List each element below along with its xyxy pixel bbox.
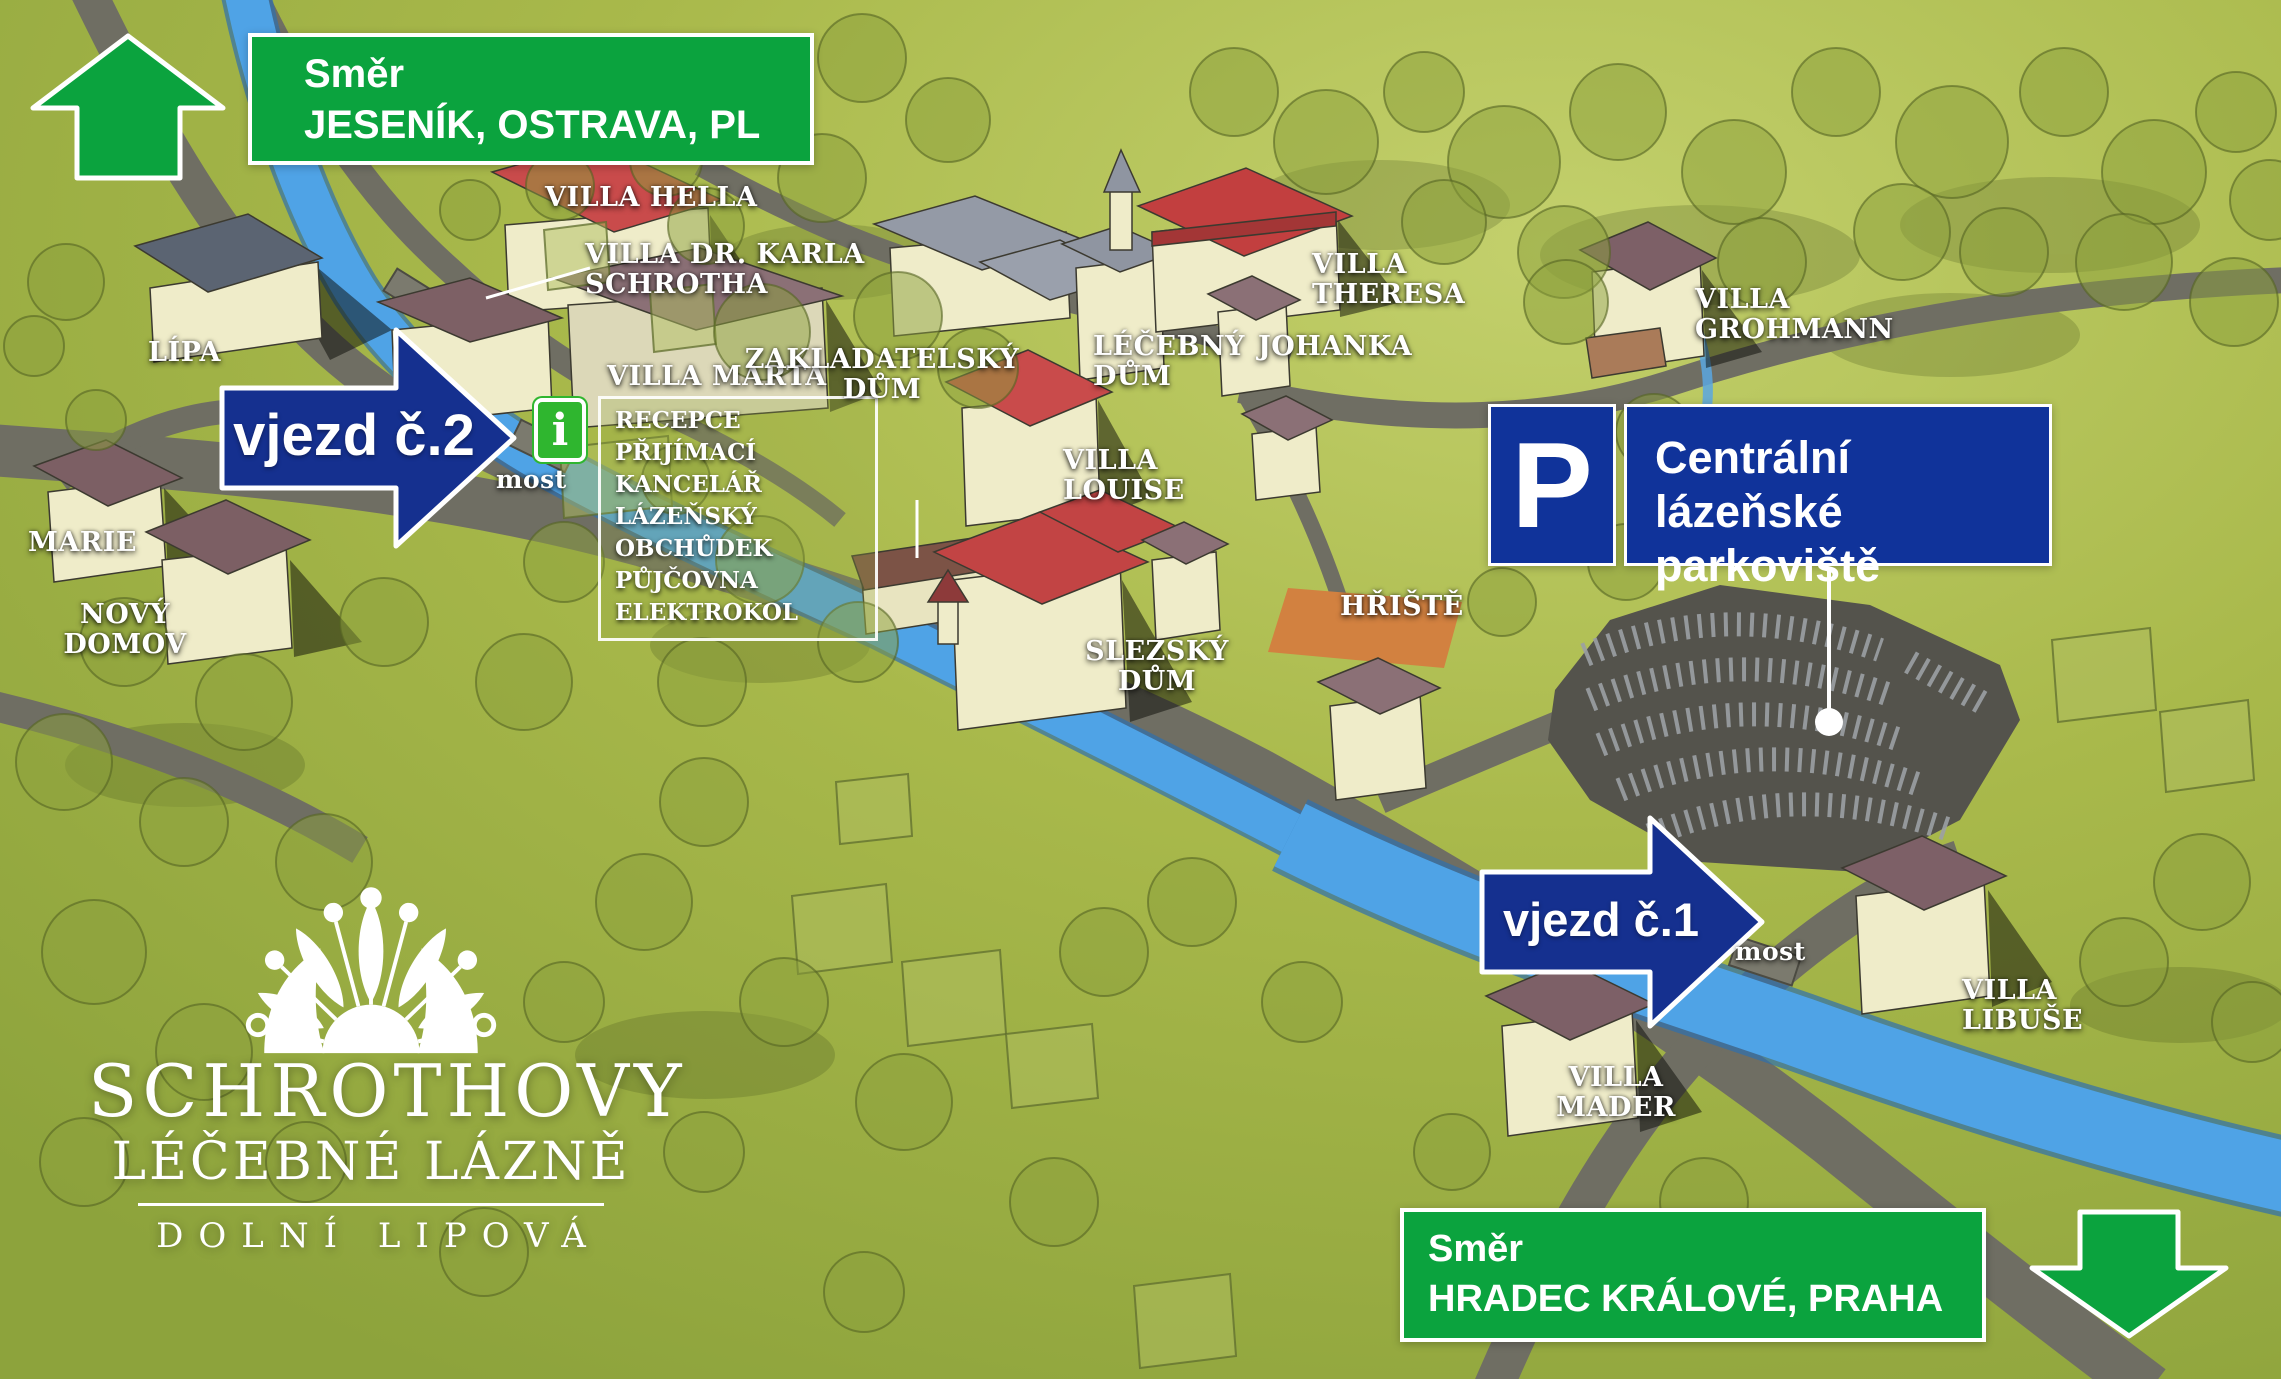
logo-line-3: DOLNÍ LIPOVÁ [88,1216,654,1256]
parking-sign-line1: Centrální [1655,431,2049,485]
info-line: LÁZEŇSKÝ OBCHŮDEK [615,501,865,565]
direction-sign-south-smer: Směr [1428,1224,1982,1274]
entrance-2-label: vjezd č.2 [230,402,478,469]
label-johanka: JOHANKA [1258,332,1412,362]
spa-map: Směr JESENÍK, OSTRAVA, PL Směr HRADEC KR… [0,0,2281,1379]
label-hriste: HŘIŠTĚ [1340,592,1464,622]
info-line: RECEPCE [615,405,865,437]
logo-line-2: LÉČEBNÉ LÁZNĚ [88,1134,654,1191]
parking-pointer-line [1827,568,1831,712]
reception-info-box: RECEPCE PŘIJÍMACÍ KANCELÁŘ LÁZEŇSKÝ OBCH… [598,396,878,641]
label-lecebny-dum: LÉČEBNÝDŮM [1093,332,1245,392]
label-most-2: most [496,466,567,494]
logo-divider [138,1203,604,1206]
direction-sign-north: Směr JESENÍK, OSTRAVA, PL [248,33,814,165]
entrance-1-label: vjezd č.1 [1490,892,1712,947]
parking-pointer-dot [1815,708,1843,736]
building-small-house-south [1318,658,1440,800]
direction-sign-south-dest: HRADEC KRÁLOVÉ, PRAHA [1428,1274,1982,1324]
label-villa-dr-karla-schrotha: VILLA DR. KARLASCHROTHA [585,240,865,300]
info-line: PŘIJÍMACÍ KANCELÁŘ [615,437,865,501]
label-lipa: LÍPA [148,338,221,368]
parking-p-icon: P [1488,404,1616,566]
parking-sign-text: Centrální lázeňské parkoviště [1624,404,2052,566]
label-slezsky-dum: SLEZSKÝDŮM [1085,637,1229,697]
direction-sign-north-smer: Směr [304,49,810,100]
spa-logo: SCHROTHOVY LÉČEBNÉ LÁZNĚ DOLNÍ LIPOVÁ [88,860,654,1256]
label-zakladatelsky-dum: ZAKLADATELSKÝDŮM [745,345,1020,405]
label-villa-louise: VILLALOUISE [1063,446,1185,506]
parking-sign: P Centrální lázeňské parkoviště [1488,404,2052,566]
label-villa-theresa: VILLATHERESA [1312,250,1465,310]
label-villa-grohmann: VILLAGROHMANN [1695,285,1894,345]
info-line: PŮJČOVNA ELEKTROKOL [615,565,865,629]
logo-line-1: SCHROTHOVY [88,1054,654,1130]
info-icon: i [534,398,586,462]
label-novy-domov: NOVÝDOMOV [63,600,186,660]
label-marie: MARIE [28,528,137,558]
label-villa-mader: VILLAMADER [1556,1063,1676,1123]
label-most-1: most [1735,938,1806,966]
label-villa-libuse: VILLALIBUŠE [1962,976,2083,1036]
direction-sign-north-dest: JESENÍK, OSTRAVA, PL [304,100,810,151]
parking-sign-line2: lázeňské parkoviště [1655,485,2049,593]
direction-sign-south: Směr HRADEC KRÁLOVÉ, PRAHA [1400,1208,1986,1342]
flower-icon [206,860,536,1060]
label-villa-hella: VILLA HELLA [545,183,757,213]
